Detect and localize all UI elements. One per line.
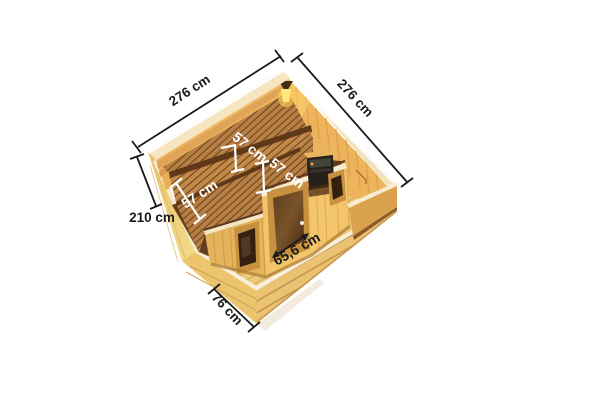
svg-text:210 cm: 210 cm xyxy=(129,210,175,225)
